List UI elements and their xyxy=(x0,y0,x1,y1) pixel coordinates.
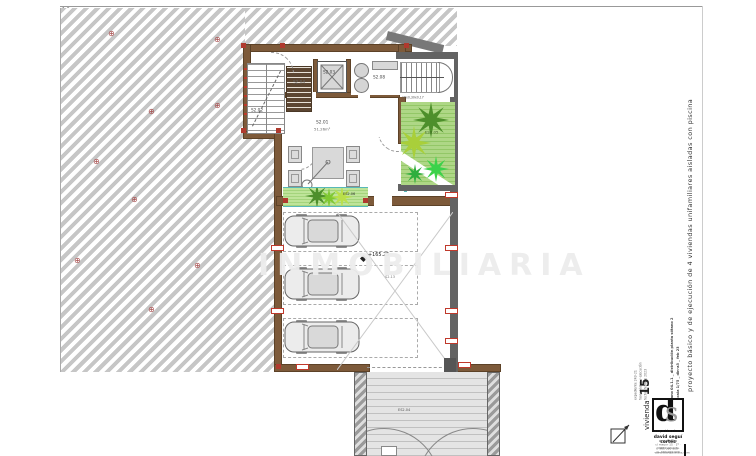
drawing-sheet: 1.2 superficies útiles ⊕ ⊕ ⊕ ⊕ ⊕ ⊕ ⊕ ⊕ ⊕… xyxy=(0,0,756,456)
logo-caption: arquitectos xyxy=(654,429,682,433)
survey-point-icon: ⊕ xyxy=(108,30,115,38)
chair xyxy=(346,146,360,163)
vivienda-number: 15 xyxy=(638,379,652,396)
planter: ES2.06 xyxy=(283,187,368,207)
dimension-tick xyxy=(458,362,471,368)
dimension-tick xyxy=(271,308,284,314)
plan-line-1: plano 04.1.1 _ distribución planta sótan… xyxy=(670,318,674,402)
exterior-stair xyxy=(400,59,454,97)
survey-point-icon: ⊕ xyxy=(74,257,81,265)
project-title: proyecto básico y de ejecución de 4 vivi… xyxy=(686,99,694,392)
dimension-tick xyxy=(445,308,458,314)
ramp-wall-right xyxy=(487,372,500,456)
patio: ES2.05 xyxy=(401,102,455,185)
retaining-wall-stair-top xyxy=(396,52,458,59)
corner-marker xyxy=(283,198,288,203)
title-block-bar xyxy=(684,444,686,456)
corner-marker xyxy=(276,364,281,369)
survey-point-icon: ⊕ xyxy=(148,306,155,314)
bathroom: S2.08 xyxy=(351,59,400,95)
watermark: INMOBILIARIA xyxy=(258,248,591,283)
living-area-label: 51.26m² xyxy=(314,127,330,131)
door-gap xyxy=(374,196,392,206)
counter xyxy=(372,61,398,70)
logo: d s xyxy=(652,398,684,432)
corner-marker xyxy=(404,43,409,48)
gate-post xyxy=(381,446,397,456)
sheet-top-line xyxy=(60,6,703,7)
plant-icon xyxy=(405,164,425,184)
corner-marker xyxy=(363,198,368,203)
vivienda-word: vivienda xyxy=(643,400,651,430)
survey-point-icon: ⊕ xyxy=(214,36,221,44)
patio-path xyxy=(401,146,455,185)
stair-tread-marks xyxy=(244,68,247,122)
survey-point-icon: ⊕ xyxy=(214,102,221,110)
corner-marker xyxy=(280,43,285,48)
ramp-label: ES2.04 xyxy=(398,408,410,412)
north-arrow-icon xyxy=(608,420,634,446)
logo-letter-s: s xyxy=(665,398,678,428)
dimension-tick xyxy=(296,364,309,370)
plan-line-2: escala 1/75 _ din-a3 _ feb 23 xyxy=(676,346,680,402)
plant-icon xyxy=(331,187,353,207)
sheet-right-line xyxy=(702,6,703,456)
toilet-icon xyxy=(354,78,369,93)
retaining-wall-patio-bottom xyxy=(398,184,458,191)
corner-marker xyxy=(276,128,281,133)
living-label: S2.01 xyxy=(316,120,328,125)
ramp-cross-lines xyxy=(337,212,453,370)
patio-label: ES2.05 xyxy=(425,130,438,134)
survey-point-icon: ⊕ xyxy=(93,158,100,166)
pillar xyxy=(444,358,456,373)
stair-label: S2.02 xyxy=(251,108,263,113)
plant-icon xyxy=(423,156,449,182)
garage-gate-line xyxy=(367,367,447,368)
corner-marker xyxy=(241,128,246,133)
ramp-wall-left xyxy=(354,372,367,456)
survey-point-icon: ⊕ xyxy=(148,108,155,116)
planter-label: ES2.06 xyxy=(343,192,355,196)
hall-label: S2.04 xyxy=(293,80,305,85)
stair-center-line xyxy=(400,77,444,78)
ramp: ES2.04 xyxy=(367,372,487,456)
bathroom-label: S2.08 xyxy=(373,75,385,80)
corner-marker xyxy=(241,43,246,48)
basin-icon xyxy=(354,63,369,78)
survey-point-icon: ⊕ xyxy=(131,196,138,204)
elevator-label: S2.03 xyxy=(323,70,335,75)
elevator: S2.03 xyxy=(317,61,347,93)
elevator-x-icon xyxy=(318,62,346,92)
dimension-tick xyxy=(445,192,458,198)
survey-point-icon: ⊕ xyxy=(194,262,201,270)
gate-arc xyxy=(417,428,487,456)
dimension-tick xyxy=(445,338,458,344)
vivienda-label: vivienda 15 xyxy=(634,379,653,430)
ext-stair-note: 16x0,30x0,17 xyxy=(402,96,424,100)
chair xyxy=(346,170,360,187)
contact-line-3: www.dsarquitectos.com xyxy=(655,451,682,454)
